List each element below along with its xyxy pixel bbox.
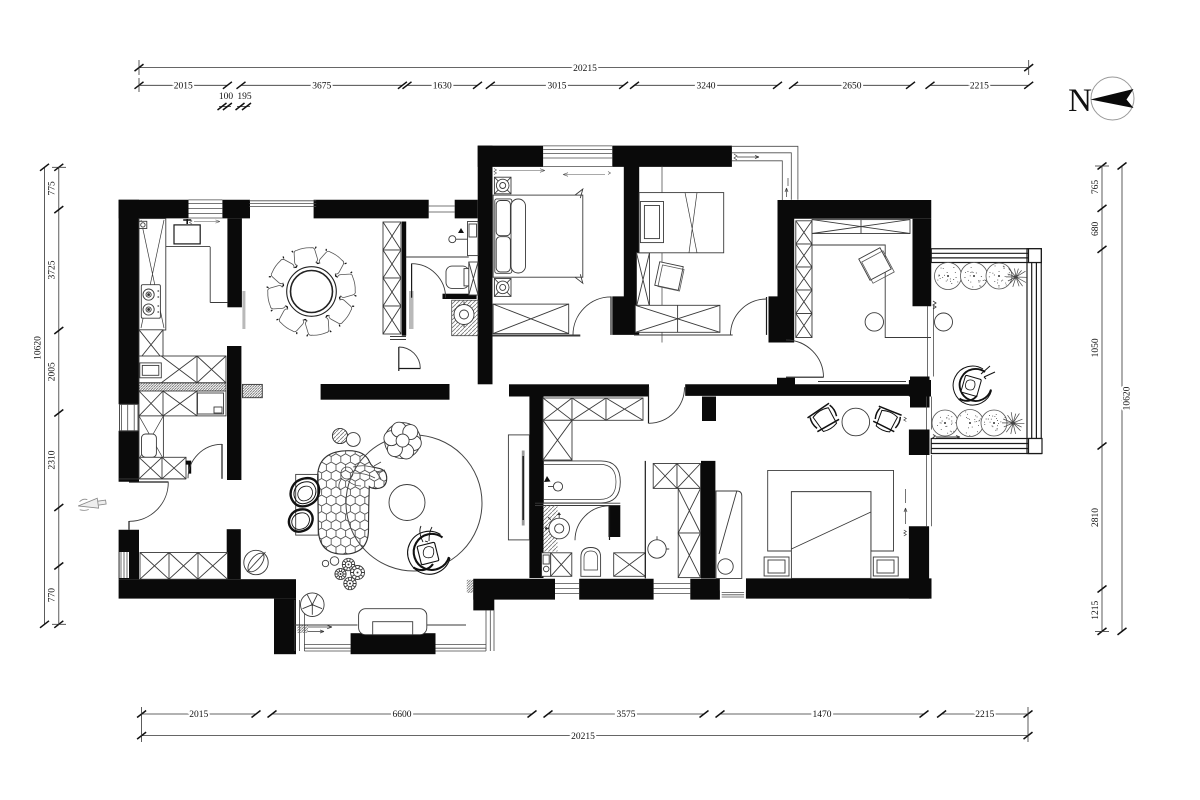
svg-text:2215: 2215: [970, 82, 989, 92]
svg-text:20215: 20215: [571, 732, 595, 742]
svg-text:2015: 2015: [174, 82, 193, 92]
svg-text:3240: 3240: [697, 82, 716, 92]
svg-text:3015: 3015: [547, 82, 566, 92]
svg-text:1630: 1630: [433, 82, 452, 92]
svg-text:765: 765: [1091, 180, 1101, 195]
svg-text:680: 680: [1091, 222, 1101, 237]
svg-text:100: 100: [219, 92, 234, 102]
svg-text:1215: 1215: [1091, 600, 1101, 619]
svg-text:20215: 20215: [573, 64, 597, 74]
svg-text:1050: 1050: [1091, 338, 1101, 357]
svg-text:2015: 2015: [189, 710, 208, 720]
svg-text:2810: 2810: [1091, 508, 1101, 527]
svg-text:2215: 2215: [975, 710, 994, 720]
svg-text:3725: 3725: [48, 260, 58, 279]
svg-text:1470: 1470: [813, 710, 832, 720]
svg-text:2310: 2310: [48, 450, 58, 469]
svg-text:3675: 3675: [312, 82, 331, 92]
svg-text:770: 770: [48, 588, 58, 603]
svg-text:10620: 10620: [1123, 386, 1133, 410]
svg-text:775: 775: [48, 181, 58, 196]
svg-text:N: N: [1068, 83, 1092, 119]
svg-text:6600: 6600: [393, 710, 412, 720]
svg-text:2005: 2005: [48, 362, 58, 381]
svg-text:3575: 3575: [617, 710, 636, 720]
svg-text:195: 195: [237, 92, 252, 102]
svg-text:2650: 2650: [843, 82, 862, 92]
svg-text:10620: 10620: [33, 336, 43, 360]
